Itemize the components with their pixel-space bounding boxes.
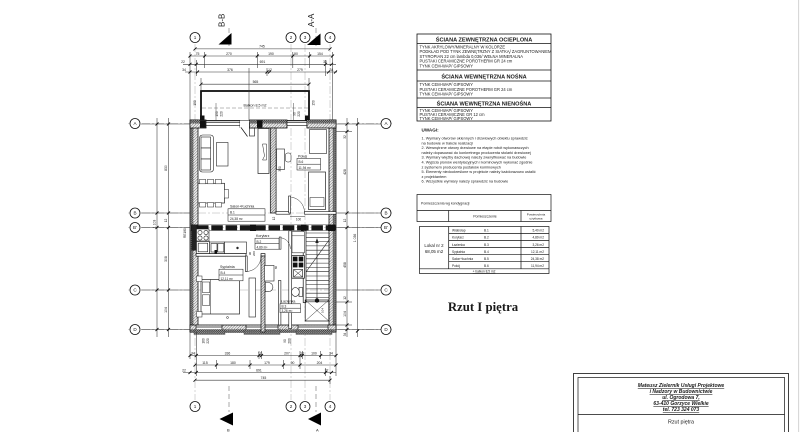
svg-text:B: B [384, 211, 387, 216]
svg-text:4,89 m2: 4,89 m2 [532, 236, 544, 240]
svg-text:220: 220 [297, 111, 301, 117]
svg-text:ŚCIANA ZEWNĘTRZNA OCIEPLONA: ŚCIANA ZEWNĘTRZNA OCIEPLONA [436, 36, 533, 43]
svg-text:Wiatrołap: Wiatrołap [452, 229, 466, 233]
svg-text:4: 4 [329, 35, 332, 40]
svg-text:80: 80 [274, 266, 278, 270]
svg-text:A-A: A-A [307, 13, 316, 27]
svg-text:Pokój: Pokój [452, 264, 460, 268]
svg-text:32: 32 [325, 368, 329, 372]
svg-text:220: 220 [206, 338, 210, 344]
svg-text:TYNK CEM-WAP/ GIPSOWY: TYNK CEM-WAP/ GIPSOWY [420, 92, 474, 97]
svg-text:22: 22 [182, 368, 186, 372]
svg-text:UWAGI:: UWAGI: [422, 128, 440, 133]
svg-text:90: 90 [283, 339, 287, 343]
svg-text:115: 115 [202, 361, 208, 365]
svg-text:350: 350 [278, 166, 282, 172]
svg-text:12: 12 [272, 217, 276, 221]
svg-text:12,11 m2: 12,11 m2 [531, 250, 544, 254]
svg-text:Balkon 8,5 m2: Balkon 8,5 m2 [244, 104, 267, 108]
svg-text:Korytarz: Korytarz [256, 234, 270, 238]
svg-text:12: 12 [300, 351, 304, 355]
svg-text:68,05 m2: 68,05 m2 [425, 249, 444, 254]
svg-text:tel. 723 324 073: tel. 723 324 073 [663, 407, 700, 413]
svg-text:34: 34 [191, 351, 195, 355]
svg-text:204: 204 [317, 361, 323, 365]
svg-text:104: 104 [321, 308, 325, 313]
svg-text:2: 2 [290, 35, 293, 40]
svg-text:691: 691 [260, 60, 266, 64]
svg-text:154: 154 [317, 52, 323, 56]
svg-text:12: 12 [343, 296, 347, 300]
svg-text:104: 104 [343, 311, 347, 317]
svg-text:Pomieszczenie: Pomieszczenie [473, 215, 497, 219]
svg-text:2. Wewnętrzne otwory drzwiowe: 2. Wewnętrzne otwory drzwiowe na etapie … [422, 146, 529, 150]
svg-text:B.2: B.2 [484, 236, 489, 240]
svg-text:4,89 m²: 4,89 m² [257, 246, 268, 250]
svg-text:220: 220 [220, 111, 224, 117]
svg-text:12,11 m²: 12,11 m² [221, 277, 233, 281]
svg-text:150: 150 [193, 100, 197, 106]
svg-text:B.3: B.3 [282, 304, 287, 308]
svg-text:428: 428 [343, 169, 347, 175]
svg-text:Łazienka: Łazienka [281, 300, 295, 304]
svg-text:z projektantem: z projektantem [422, 175, 447, 179]
svg-text:270: 270 [226, 52, 232, 56]
svg-text:691: 691 [256, 368, 262, 372]
svg-text:TYNK CEM-WAP/ GIPSOWY: TYNK CEM-WAP/ GIPSOWY [420, 64, 474, 69]
svg-text:5. Elementy niedookreślone w p: 5. Elementy niedookreślone w projekcie n… [422, 170, 536, 174]
svg-text:100: 100 [296, 218, 302, 222]
svg-text:32: 32 [343, 135, 347, 139]
svg-text:B: B [227, 428, 230, 432]
svg-text:Sypialnia: Sypialnia [452, 250, 465, 254]
svg-text:Korytarz: Korytarz [452, 236, 464, 240]
svg-text:z systemem producenta pustaków: z systemem producenta pustaków kominowyc… [422, 165, 501, 169]
svg-text:Pomieszczenia wg kondygnacji: Pomieszczenia wg kondygnacji [421, 202, 470, 206]
svg-text:190: 190 [268, 52, 274, 56]
svg-text:11,94 m²: 11,94 m² [299, 166, 311, 170]
svg-text:150: 150 [312, 100, 316, 106]
svg-text:75: 75 [196, 52, 200, 56]
svg-text:308: 308 [164, 256, 168, 262]
svg-text:+ balkon 8,5 m2: + balkon 8,5 m2 [473, 270, 496, 274]
svg-text:Sypialnia: Sypialnia [220, 265, 235, 269]
svg-text:należy dopasować do konkretneg: należy dopasować do konkretnego producen… [422, 151, 531, 155]
svg-text:34: 34 [330, 68, 334, 72]
svg-text:458: 458 [343, 262, 347, 268]
svg-text:B': B' [384, 225, 388, 230]
svg-text:90: 90 [293, 112, 297, 116]
svg-text:na budowie w trakcie realizacj: na budowie w trakcie realizacji [422, 141, 473, 145]
svg-text:150: 150 [215, 111, 219, 117]
svg-text:34: 34 [182, 68, 186, 72]
svg-text:4. Wyjścia pionów wentylacyjny: 4. Wyjścia pionów wentylacyjnych i komin… [422, 161, 533, 165]
svg-text:B.1: B.1 [230, 211, 235, 215]
svg-text:1. Wymiary otworów okiennych i: 1. Wymiary otworów okiennych i drzwiowyc… [422, 137, 528, 141]
svg-text:90: 90 [294, 52, 298, 56]
svg-text:3: 3 [304, 404, 307, 409]
svg-text:B.4: B.4 [484, 250, 489, 254]
svg-text:745: 745 [259, 45, 265, 49]
svg-text:180: 180 [230, 361, 236, 365]
svg-text:B': B' [133, 225, 137, 230]
svg-text:32: 32 [323, 60, 327, 64]
svg-text:B.6: B.6 [484, 264, 489, 268]
svg-text:830: 830 [164, 165, 168, 171]
svg-text:Rzut piętra: Rzut piętra [668, 420, 694, 426]
svg-text:RE180: RE180 [183, 228, 187, 238]
svg-text:Rzut I piętra: Rzut I piętra [448, 300, 519, 314]
svg-text:104: 104 [164, 307, 168, 313]
svg-text:Salon+Kuchnia: Salon+Kuchnia [230, 205, 254, 209]
svg-text:ŚCIANA WEWNĘTRZNA NOŚNA: ŚCIANA WEWNĘTRZNA NOŚNA [441, 73, 526, 80]
svg-text:3: 3 [304, 35, 307, 40]
svg-text:Salon+kuchnia: Salon+kuchnia [452, 257, 473, 261]
svg-text:12: 12 [164, 219, 168, 223]
svg-text:3. Wymiary więźby dachowej nal: 3. Wymiary więźby dachowej należy zweryf… [422, 156, 527, 160]
svg-text:12: 12 [258, 351, 262, 355]
svg-text:200: 200 [252, 251, 256, 256]
svg-text:207: 207 [284, 351, 290, 355]
svg-text:B.3: B.3 [484, 243, 489, 247]
svg-text:5,40 m2: 5,40 m2 [532, 229, 544, 233]
svg-text:Łazienka: Łazienka [452, 243, 465, 247]
svg-text:1: 1 [194, 35, 197, 40]
svg-text:B.4: B.4 [221, 271, 226, 275]
svg-text:179: 179 [264, 361, 270, 365]
svg-text:11,94 m2: 11,94 m2 [531, 264, 544, 268]
svg-text:3,26 m2: 3,26 m2 [532, 243, 544, 247]
svg-text:2: 2 [290, 404, 293, 409]
svg-text:B: B [133, 211, 136, 216]
svg-text:90: 90 [291, 361, 295, 365]
svg-text:12: 12 [268, 68, 272, 72]
svg-text:22: 22 [181, 60, 185, 64]
svg-text:B-B: B-B [218, 14, 227, 27]
svg-text:Pokój: Pokój [298, 154, 307, 158]
svg-text:745: 745 [261, 376, 267, 380]
svg-text:Lokal nr 2: Lokal nr 2 [424, 243, 444, 248]
svg-text:B.1: B.1 [484, 229, 489, 233]
svg-text:1 036: 1 036 [353, 234, 357, 243]
svg-text:376: 376 [227, 68, 233, 72]
svg-text:34: 34 [343, 333, 347, 337]
svg-text:4: 4 [329, 404, 332, 409]
svg-text:B.5: B.5 [484, 257, 489, 261]
svg-text:160: 160 [202, 338, 206, 344]
svg-text:12: 12 [343, 219, 347, 223]
svg-text:24,38 m²: 24,38 m² [230, 217, 243, 221]
svg-text:565: 565 [253, 80, 259, 84]
svg-text:1: 1 [194, 404, 197, 409]
svg-text:200: 200 [288, 338, 292, 344]
svg-text:24,38 m2: 24,38 m2 [531, 257, 545, 261]
svg-text:34: 34 [329, 351, 333, 355]
svg-text:TYNK CEM-WAP/ GIPSOWY: TYNK CEM-WAP/ GIPSOWY [420, 116, 474, 121]
svg-text:3,26 m²: 3,26 m² [282, 309, 293, 313]
svg-text:100: 100 [311, 351, 317, 355]
svg-text:użytkowa: użytkowa [530, 217, 543, 221]
svg-text:1 103: 1 103 [153, 220, 157, 229]
svg-text:A: A [316, 428, 319, 432]
svg-text:279: 279 [297, 68, 303, 72]
svg-text:336: 336 [225, 351, 231, 355]
svg-text:6. Wszystkie wymiary należy sp: 6. Wszystkie wymiary należy sprawdzić na… [422, 180, 509, 184]
svg-text:B.2: B.2 [257, 240, 262, 244]
svg-text:ŚCIANA WEWNĘTRZNA NIENOŚNA: ŚCIANA WEWNĘTRZNA NIENOŚNA [437, 100, 532, 107]
svg-text:B.6: B.6 [299, 160, 304, 164]
